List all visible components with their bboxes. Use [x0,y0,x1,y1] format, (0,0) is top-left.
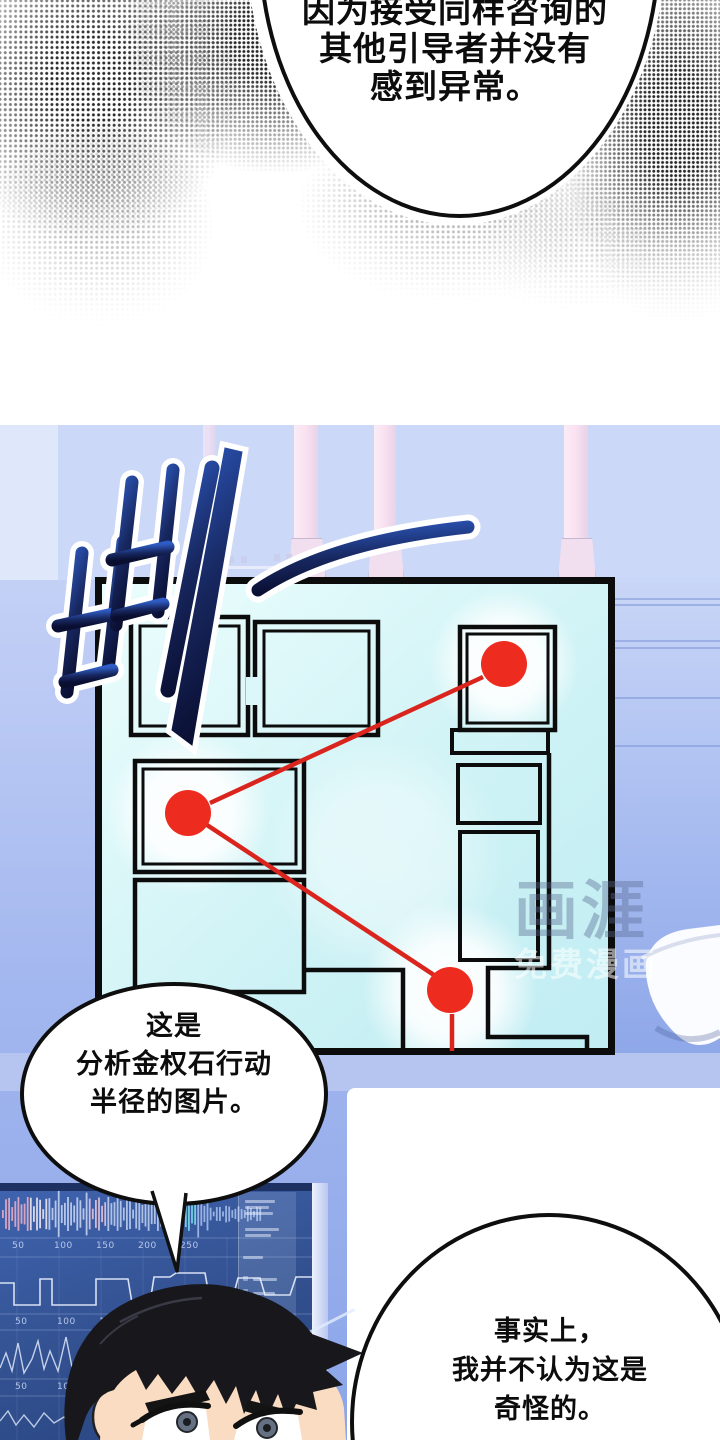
axis-tick: 50 [15,1382,27,1392]
axis-tick: 100 [54,1241,73,1251]
bubble-text-line: 感到异常。 [240,68,670,106]
wall-line [612,745,720,747]
bubble-text-line: 其他引导者并没有 [240,30,670,68]
wall-line [612,598,720,600]
bubble-text-line: 这是 [20,1008,328,1046]
comic-page: 因为接受同样咨询的 其他引导者并没有 感到异常。 [0,0,720,1440]
bubble-text-line: 半径的图片。 [20,1084,328,1122]
watermark-logo: 画涯 [514,880,720,944]
bubble-text-line: 分析金权石行动 [20,1046,328,1084]
axis-tick: 150 [96,1241,115,1251]
bubble-text-line: 奇怪的。 [390,1390,710,1429]
watermark: 画涯 免费漫画 [514,880,720,981]
sfx-beep [20,430,490,760]
action-radius-dot [165,790,211,836]
axis-tick: 50 [15,1317,27,1327]
wall-line [612,647,720,649]
wall-line [612,697,720,699]
speech-bubble-middle-text: 这是 分析金权石行动 半径的图片。 [20,1008,328,1122]
axis-tick: 50 [12,1241,24,1251]
action-radius-dot [427,967,473,1013]
watermark-tagline: 免费漫画 [514,948,720,981]
character-head [30,1282,382,1440]
wall-line [612,604,720,606]
bubble-text-line: 我并不认为这是 [390,1351,710,1390]
bubble-tail [140,1185,200,1280]
bubble-text-line: 事实上， [390,1312,710,1351]
pillar-base [558,538,596,580]
speech-bubble-top-text: 因为接受同样咨询的 其他引导者并没有 感到异常。 [240,0,670,106]
wall-line [612,640,720,642]
bubble-text-line: 因为接受同样咨询的 [240,0,670,30]
speech-bubble-bottom-text: 事实上， 我并不认为这是 奇怪的。 [390,1312,710,1429]
